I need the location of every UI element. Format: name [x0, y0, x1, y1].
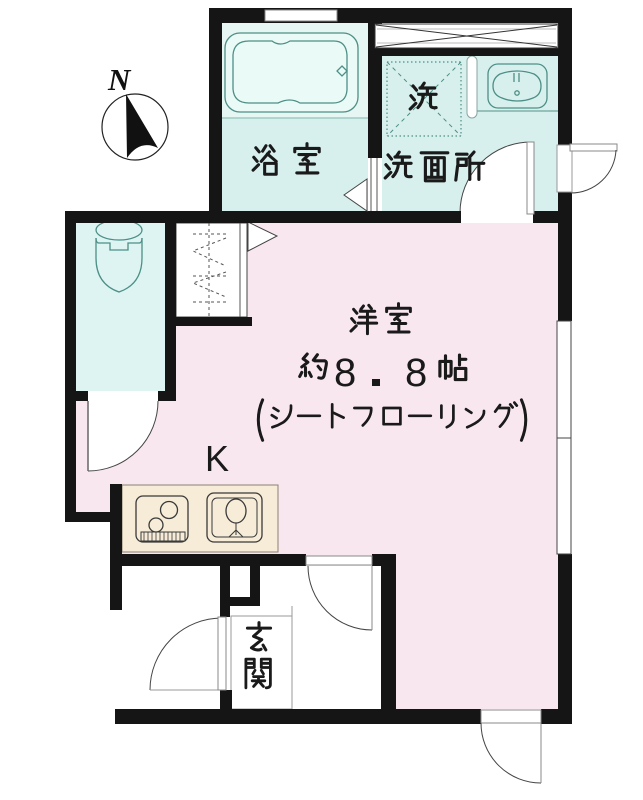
svg-text:N: N — [107, 62, 132, 97]
svg-text:8: 8 — [405, 351, 427, 395]
svg-text:K: K — [205, 438, 229, 479]
svg-text:8: 8 — [334, 351, 356, 395]
